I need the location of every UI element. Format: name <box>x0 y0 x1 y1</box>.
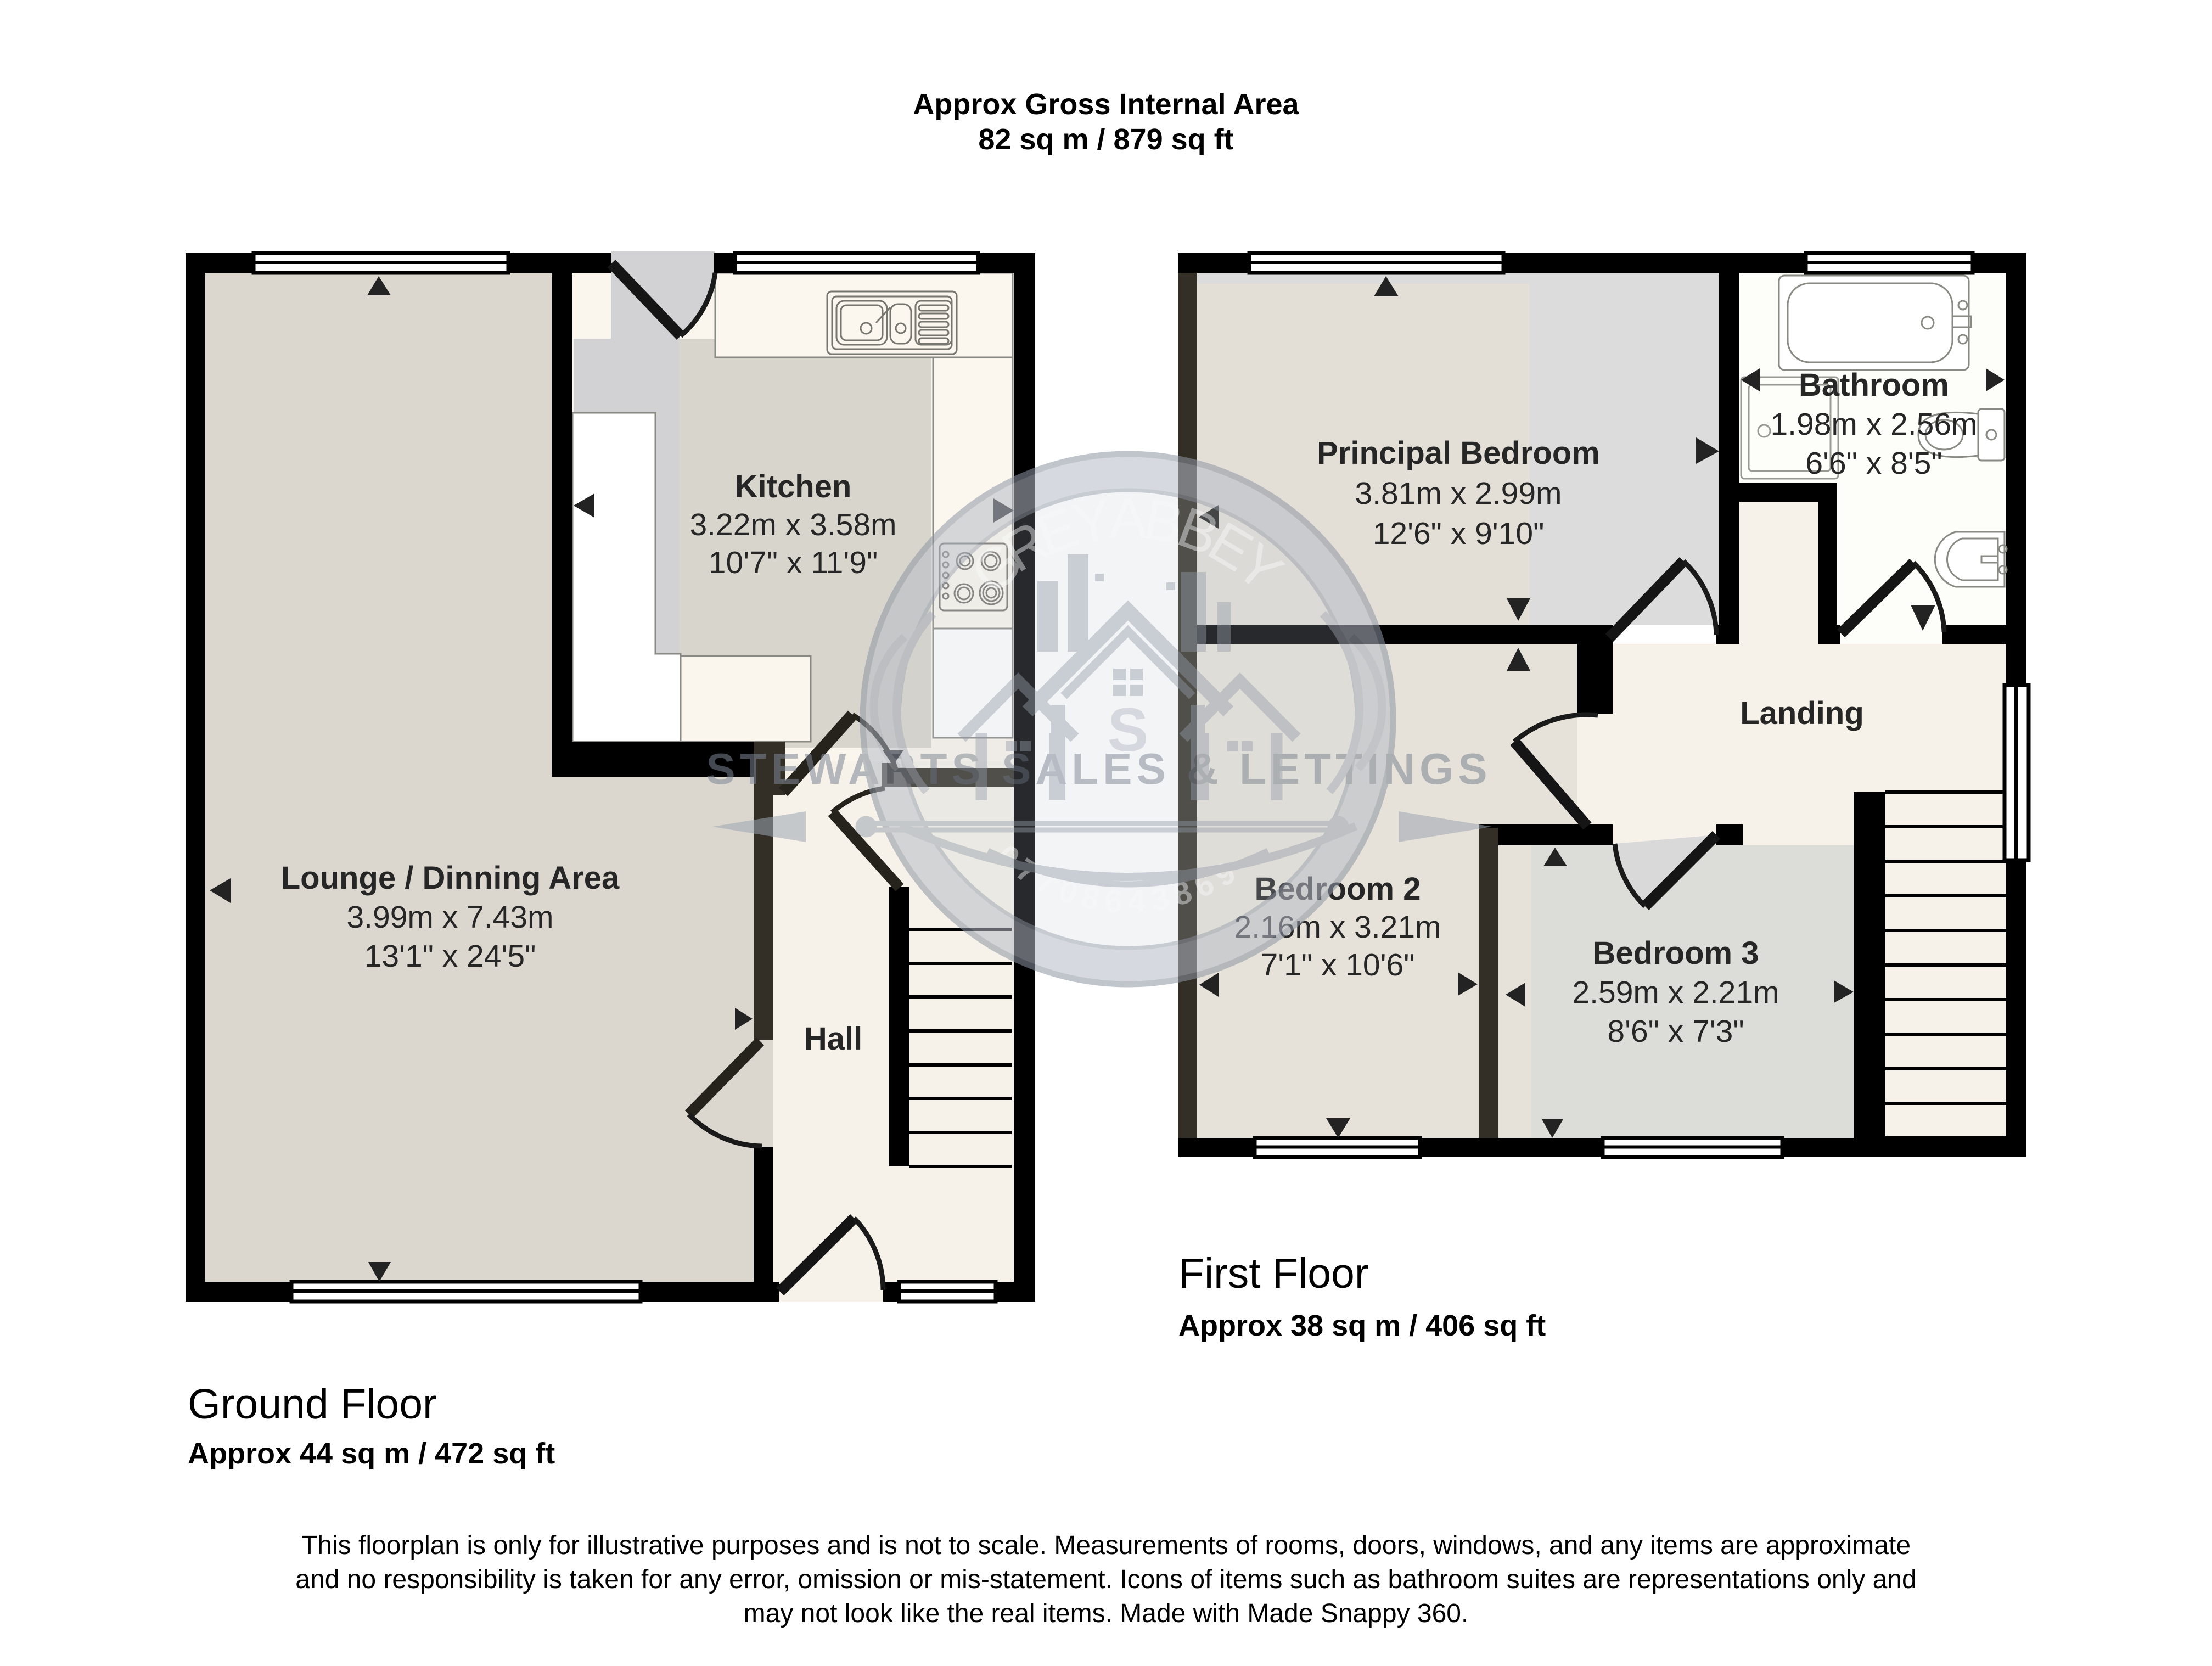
svg-text:4: 4 <box>1127 883 1146 919</box>
svg-text:8'6" x 7'3": 8'6" x 7'3" <box>1607 1014 1744 1049</box>
svg-text:82 sq m / 879 sq ft: 82 sq m / 879 sq ft <box>978 123 1233 156</box>
svg-text:Hall: Hall <box>804 1021 862 1057</box>
svg-text:This floorplan is only for ill: This floorplan is only for illustrative … <box>301 1531 1911 1560</box>
svg-text:10'7" x 11'9": 10'7" x 11'9" <box>709 545 878 580</box>
svg-text:Kitchen: Kitchen <box>735 469 852 504</box>
svg-text:Bedroom 3: Bedroom 3 <box>1593 935 1759 971</box>
svg-text:6'6" x 8'5": 6'6" x 8'5" <box>1805 446 1942 481</box>
svg-text:6: 6 <box>1103 883 1124 919</box>
svg-text:13'1" x 24'5": 13'1" x 24'5" <box>364 939 536 974</box>
svg-text:Landing: Landing <box>1740 695 1864 731</box>
svg-text:3.22m x 3.58m: 3.22m x 3.58m <box>689 507 896 542</box>
svg-text:Approx Gross Internal Area: Approx Gross Internal Area <box>913 88 1299 121</box>
svg-text:First Floor: First Floor <box>1178 1250 1369 1297</box>
svg-text:3.81m x 2.99m: 3.81m x 2.99m <box>1355 476 1562 511</box>
svg-text:2.59m x 2.21m: 2.59m x 2.21m <box>1572 975 1779 1010</box>
svg-text:3.99m x 7.43m: 3.99m x 7.43m <box>346 900 553 935</box>
svg-text:Lounge / Dinning Area: Lounge / Dinning Area <box>281 860 620 896</box>
svg-text:may not look like the real ite: may not look like the real items. Made w… <box>744 1599 1469 1628</box>
svg-text:Ground Floor: Ground Floor <box>188 1381 437 1428</box>
svg-text:Approx 38 sq m / 406 sq ft: Approx 38 sq m / 406 sq ft <box>1178 1309 1546 1342</box>
svg-text:1.98m x 2.56m: 1.98m x 2.56m <box>1770 407 1977 442</box>
svg-text:and no responsibility is taken: and no responsibility is taken for any e… <box>295 1565 1916 1594</box>
svg-text:Bathroom: Bathroom <box>1799 367 1949 403</box>
svg-text:Principal Bedroom: Principal Bedroom <box>1317 435 1600 471</box>
svg-text:12'6" x 9'10": 12'6" x 9'10" <box>1373 516 1545 551</box>
svg-text:7'1" x 10'6": 7'1" x 10'6" <box>1261 947 1415 983</box>
svg-text:Approx 44 sq m / 472 sq ft: Approx 44 sq m / 472 sq ft <box>188 1437 555 1470</box>
